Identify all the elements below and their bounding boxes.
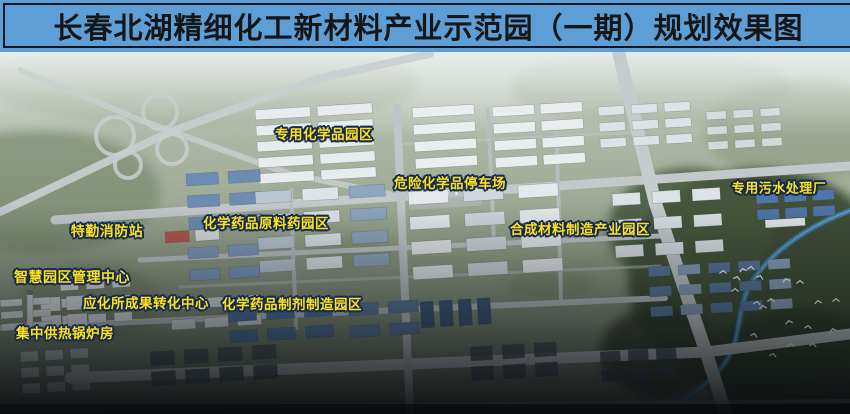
title-bar: 长春北湖精细化工新材料产业示范园（一期）规划效果图 <box>0 0 850 52</box>
planning-poster: 长春北湖精细化工新材料产业示范园（一期）规划效果图 专用化学品园区 危险化学品停… <box>0 0 850 414</box>
page-title: 长春北湖精细化工新材料产业示范园（一期）规划效果图 <box>53 5 803 47</box>
zone-label-hazardous-chemicals-parking: 危险化学品停车场 <box>394 172 506 192</box>
zone-label-ciac-achievement-transfer-center: 应化所成果转化中心 <box>83 292 209 312</box>
zone-label-special-fire-station: 特勤消防站 <box>71 221 144 241</box>
zone-label-smart-park-management-center: 智慧园区管理中心 <box>14 267 130 287</box>
zone-label-pharma-preparation-park: 化学药品制剂制造园区 <box>222 293 362 313</box>
zone-label-api-pharma-park: 化学药品原料药园区 <box>203 212 329 232</box>
title-border-box: 长春北湖精细化工新材料产业示范园（一期）规划效果图 <box>3 3 850 48</box>
zone-label-dedicated-sewage-plant: 专用污水处理厂 <box>732 178 827 197</box>
zone-label-special-chemicals-park: 专用化学品园区 <box>275 123 373 143</box>
zone-label-central-heating-boiler-house: 集中供热锅炉房 <box>16 322 114 342</box>
aerial-rendering: 专用化学品园区 危险化学品停车场 专用污水处理厂 化学药品原料药园区 特勤消防站… <box>0 52 850 414</box>
zone-label-synthetic-materials-park: 合成材料制造产业园区 <box>510 218 650 238</box>
zone-labels: 专用化学品园区 危险化学品停车场 专用污水处理厂 化学药品原料药园区 特勤消防站… <box>0 52 850 414</box>
